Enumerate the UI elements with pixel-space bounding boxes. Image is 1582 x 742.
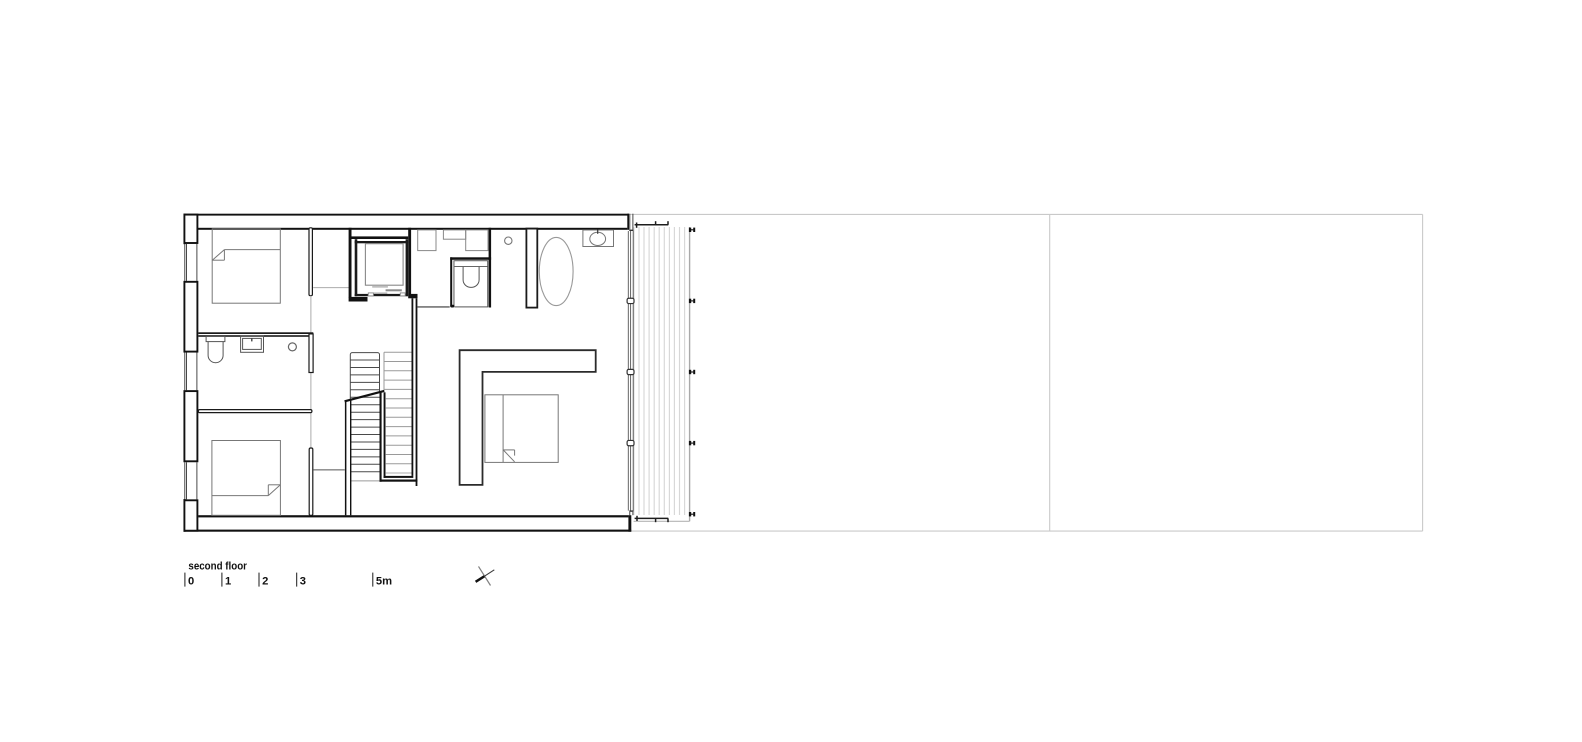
- svg-text:5m: 5m: [376, 576, 392, 588]
- svg-text:1: 1: [225, 576, 231, 588]
- svg-text:2: 2: [262, 576, 268, 588]
- svg-text:3: 3: [300, 576, 306, 588]
- svg-text:0: 0: [188, 576, 194, 588]
- svg-text:second floor: second floor: [188, 560, 247, 572]
